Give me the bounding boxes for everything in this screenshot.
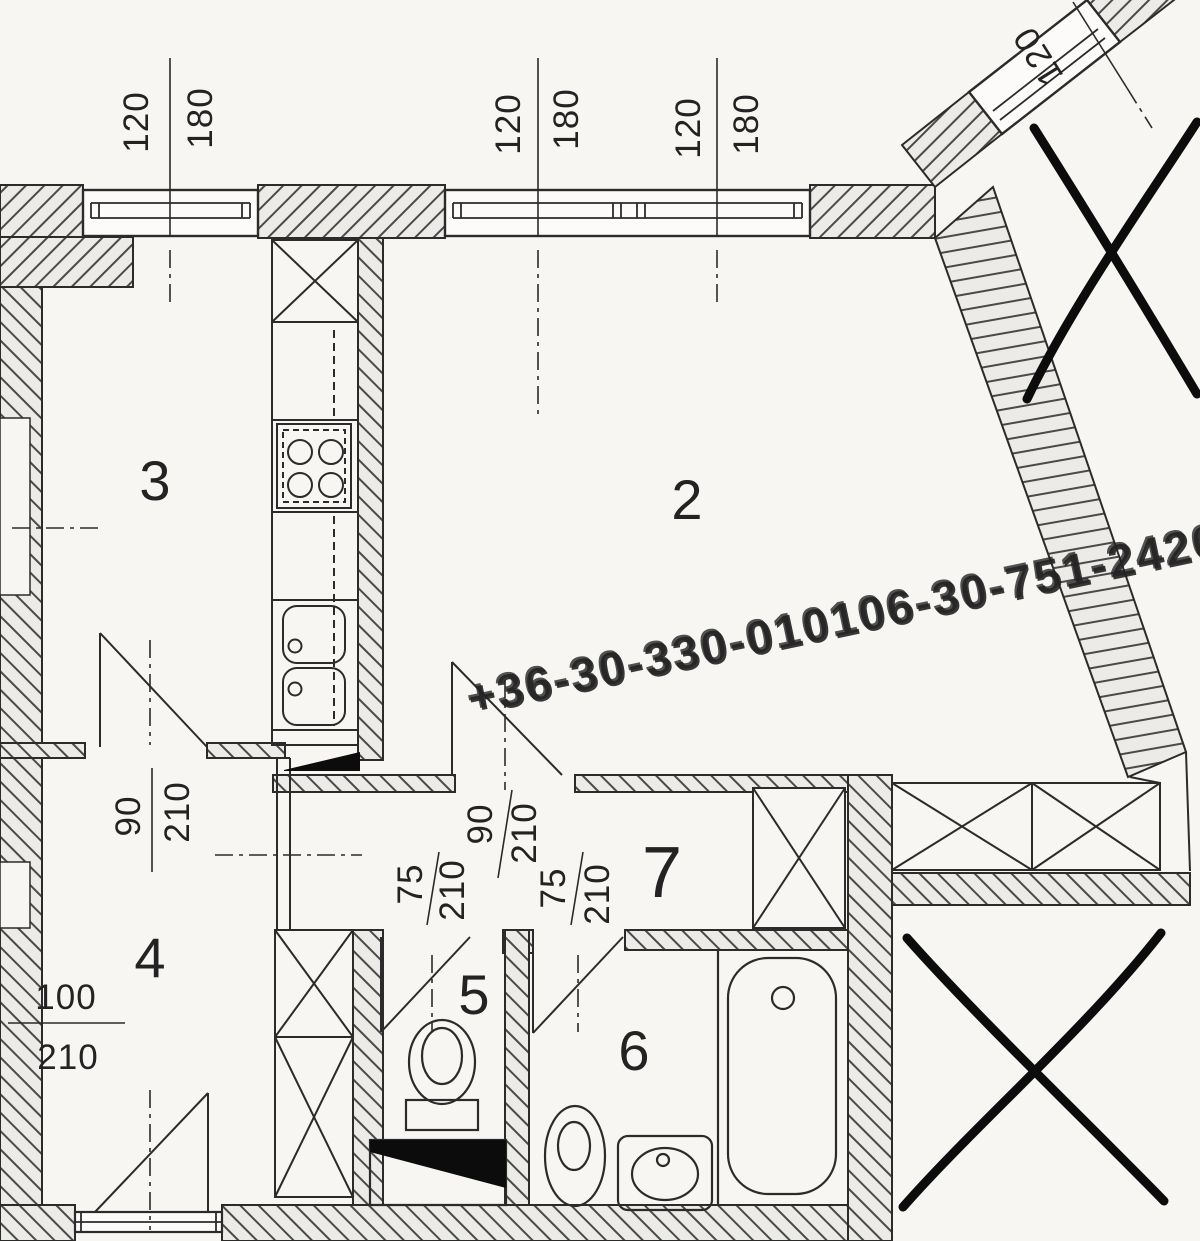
dim-window-mid-h: 180 — [547, 88, 586, 149]
wall-hall-top-left — [273, 775, 455, 792]
window-bottom — [75, 1212, 222, 1232]
shaft-box-right-1 — [892, 783, 1032, 870]
wall-kitchen-strip-right — [358, 238, 383, 760]
window-mid-double — [445, 190, 810, 236]
floor-plan-page: 120 180 120 180 120 180 120 90 210 90 21… — [0, 0, 1200, 1241]
dim-bathroom-door-w: 75 — [534, 868, 573, 909]
wall-left-notch-1 — [0, 418, 30, 595]
dim-living-door-w: 90 — [461, 804, 500, 845]
room-label-bedroom: 4 — [134, 926, 165, 989]
room-label-living: 2 — [671, 468, 702, 531]
dim-kitchen-door-h: 210 — [158, 781, 197, 842]
room-label-hall: 7 — [642, 833, 682, 913]
dim-bathroom-door-h: 210 — [578, 863, 617, 924]
room-label-kitchen: 3 — [139, 449, 170, 512]
dim-window-left-w: 120 — [117, 91, 156, 152]
wall-bottom-main — [222, 1205, 848, 1241]
dim-window-right-h: 180 — [727, 93, 766, 154]
wall-corner-block — [0, 237, 133, 287]
dim-window-right-w: 120 — [669, 97, 708, 158]
dim-bedroom-door-h: 210 — [37, 1038, 98, 1077]
wall-top-seg-mid — [258, 185, 445, 238]
wall-right-vertical — [848, 775, 892, 1241]
room-label-bathroom: 6 — [618, 1019, 649, 1082]
floor-plan-svg: 120 180 120 180 120 180 120 90 210 90 21… — [0, 0, 1200, 1241]
shaft-box-hall — [753, 788, 845, 928]
wall-top-seg-left — [0, 185, 83, 238]
closet-box-upper — [275, 930, 353, 1037]
wall-left-notch-2 — [0, 862, 30, 928]
wall-bottom-left — [0, 1205, 75, 1241]
shaft-box-kitchen — [272, 240, 358, 322]
wall-top-seg-right — [810, 185, 935, 238]
dim-living-door-h: 210 — [505, 802, 544, 863]
dim-window-left-h: 180 — [181, 87, 220, 148]
dim-wc-door-w: 75 — [391, 864, 430, 905]
dim-wc-door-h: 210 — [433, 859, 472, 920]
wall-right-band — [892, 873, 1190, 905]
closet-box-lower — [275, 1037, 353, 1197]
dim-window-mid-w: 120 — [489, 93, 528, 154]
dim-kitchen-door-w: 90 — [109, 796, 148, 837]
wall-hall-bottom-3 — [625, 930, 848, 950]
wall-wc-bath-divider — [505, 930, 529, 1205]
wall-kitchen-bottom-left — [0, 743, 85, 758]
dim-bedroom-door-w: 100 — [35, 978, 96, 1017]
room-label-wc: 5 — [458, 963, 489, 1026]
shaft-box-right-2 — [1032, 783, 1160, 870]
wall-closet-strip — [353, 930, 383, 1205]
